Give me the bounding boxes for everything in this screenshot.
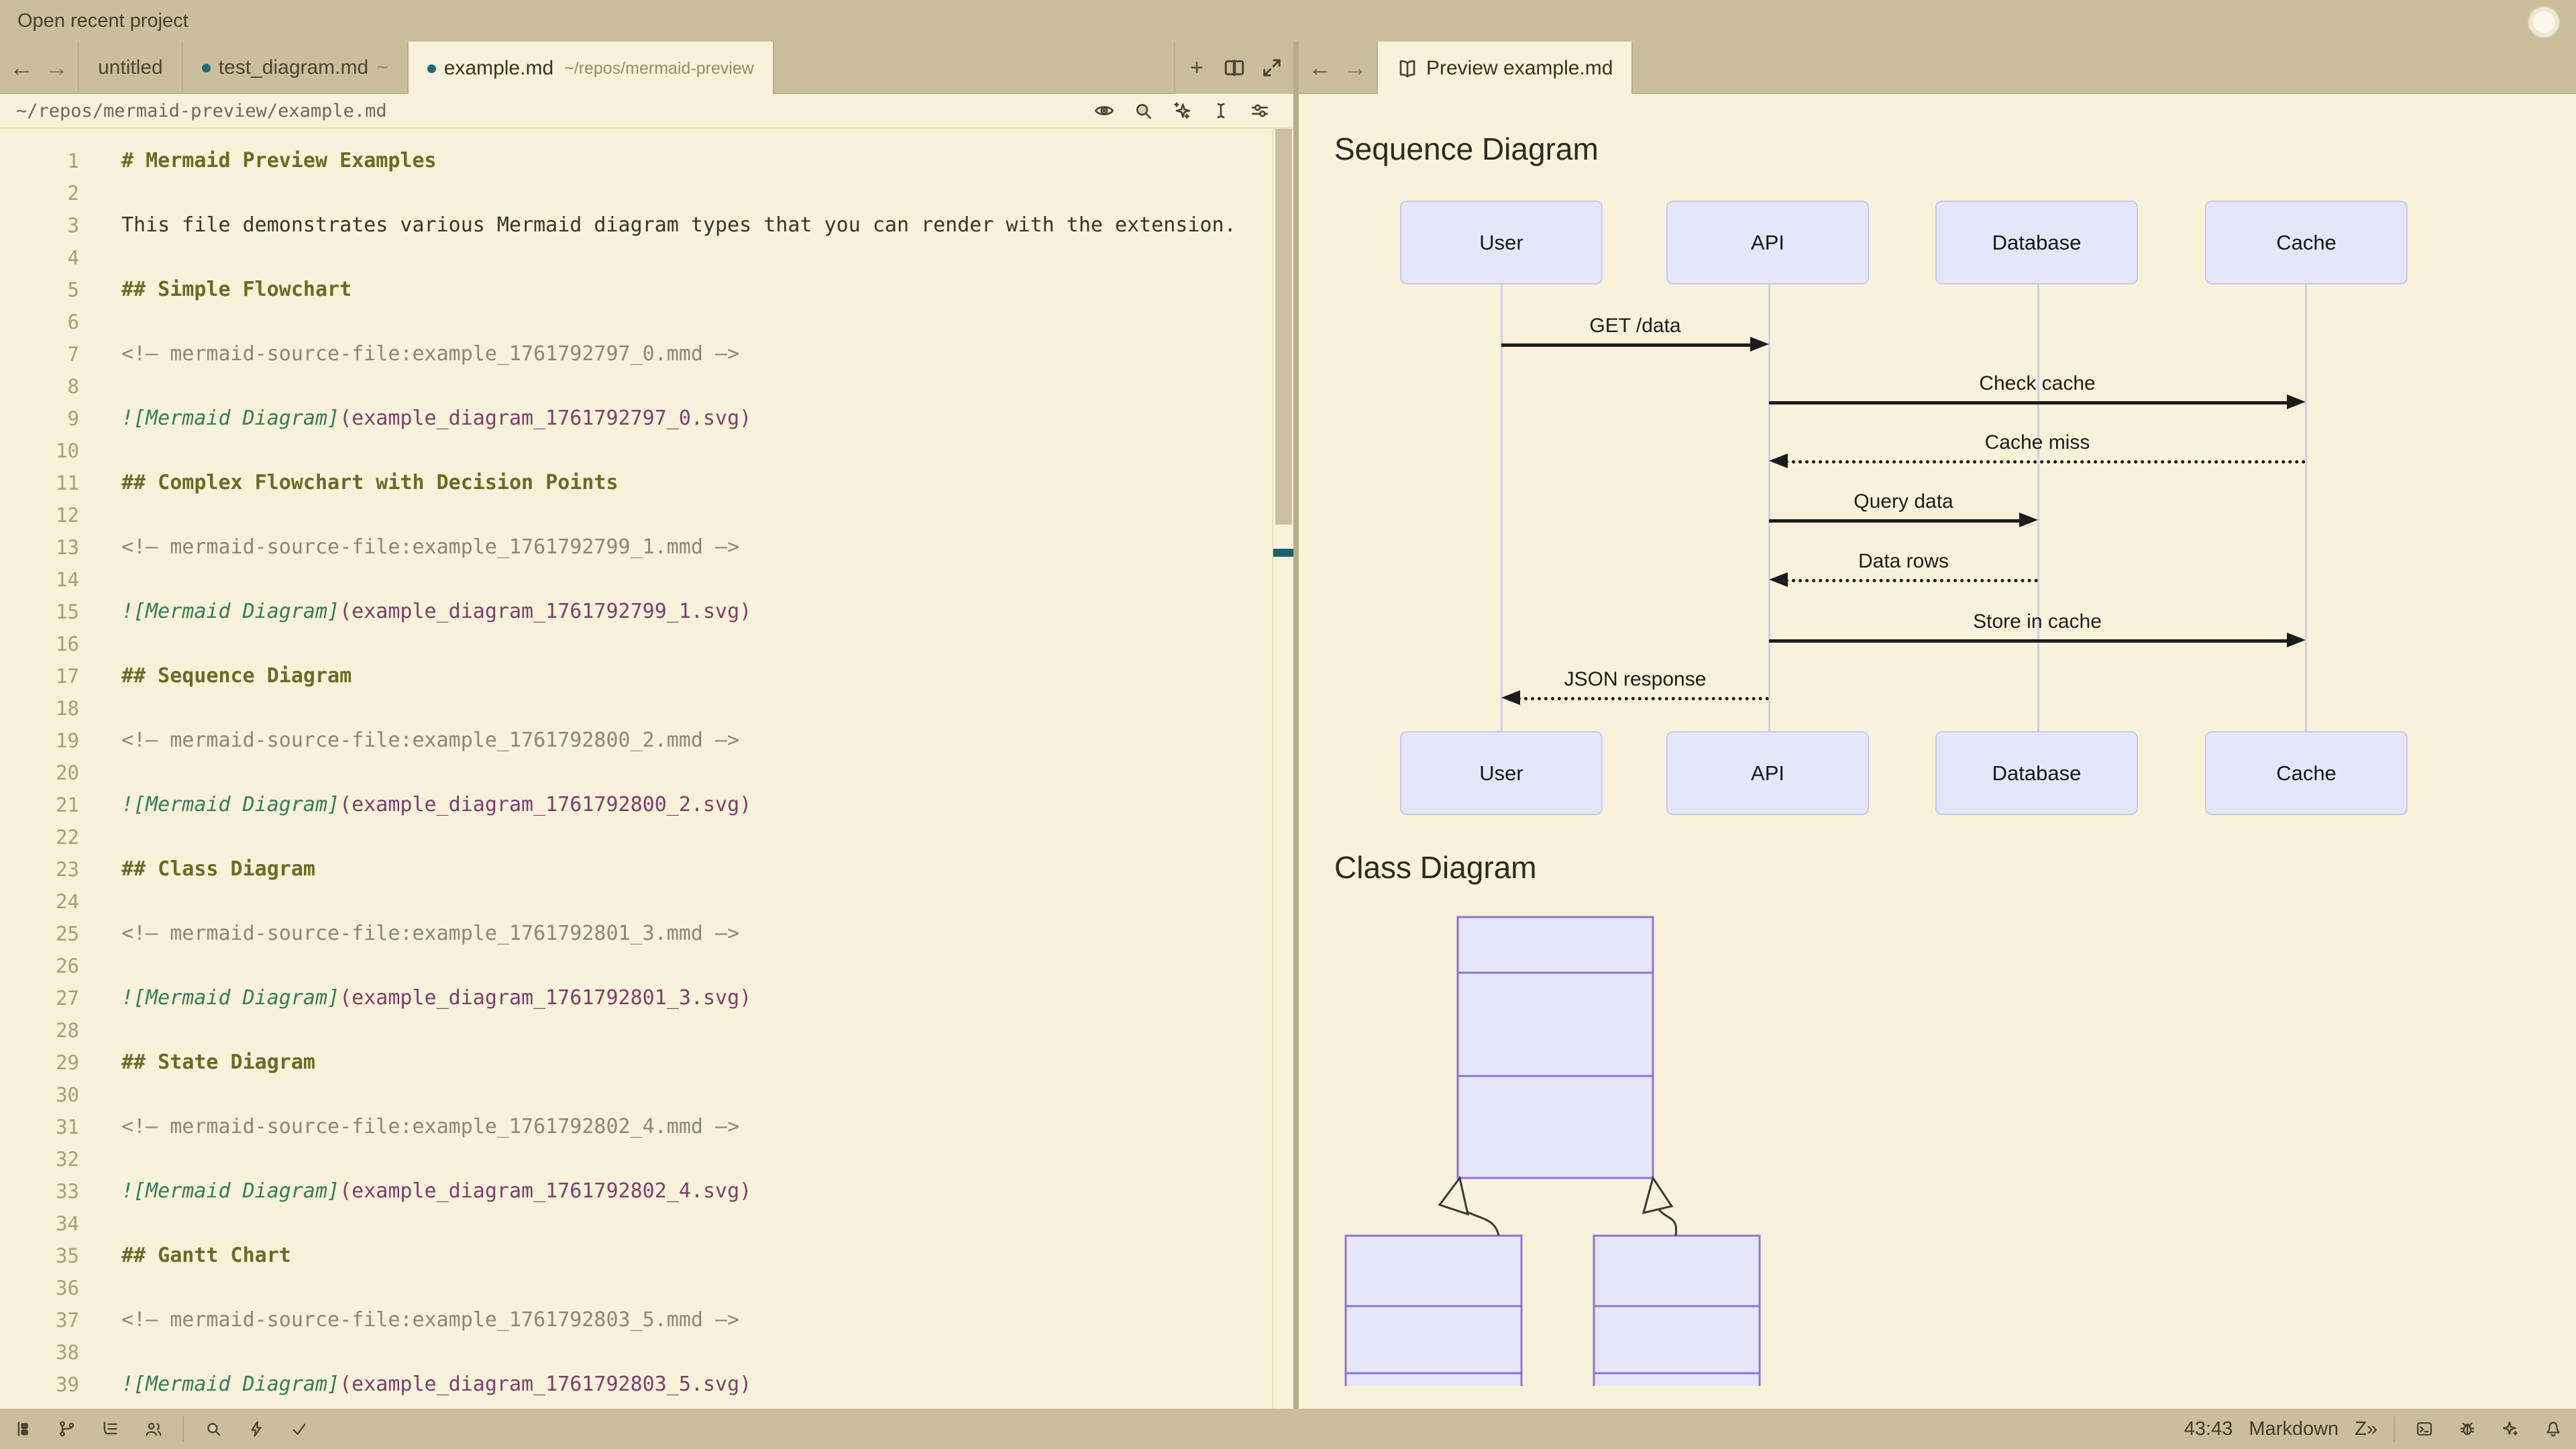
line-content: # Mermaid Preview Examples	[121, 145, 437, 177]
zoom-pane-icon[interactable]	[1256, 48, 1288, 88]
editor-line: 36	[0, 1272, 1272, 1304]
line-content: ## Simple Flowchart	[121, 274, 352, 306]
line-content: ## Class Diagram	[121, 853, 315, 885]
editor-content[interactable]: 1# Mermaid Preview Examples23This file d…	[0, 129, 1272, 1409]
editor-line: 19<!— mermaid-source-file:example_176179…	[0, 724, 1272, 757]
edit-prediction-icon[interactable]: Z»	[2355, 1418, 2377, 1440]
search-icon[interactable]	[200, 1413, 227, 1445]
line-number: 29	[0, 1046, 79, 1079]
editor-line: 9![Mermaid Diagram](example_diagram_1761…	[0, 402, 1272, 435]
line-number: 11	[0, 467, 79, 499]
inline-assist-icon[interactable]	[1167, 96, 1197, 125]
zed-window: Open recent project ← → untitledtest_dia…	[0, 0, 2576, 1449]
code-token: ![Mermaid Diagram]	[121, 986, 339, 1010]
line-number: 27	[0, 982, 79, 1014]
line-number: 12	[0, 499, 79, 531]
line-number: 4	[0, 241, 79, 274]
editor-line: 7<!— mermaid-source-file:example_1761792…	[0, 338, 1272, 370]
notifications-bell-icon[interactable]	[2540, 1413, 2567, 1445]
editor-tabs: untitledtest_diagram.md~example.md~/repo…	[79, 42, 774, 94]
code-token: <!— mermaid-source-file:example_17617927…	[121, 342, 739, 366]
line-content: ## Sequence Diagram	[121, 660, 352, 692]
forward-icon[interactable]: →	[39, 42, 74, 94]
book-icon	[1397, 58, 1418, 79]
line-number: 33	[0, 1175, 79, 1207]
editor-line: 16	[0, 628, 1272, 660]
line-number: 7	[0, 338, 79, 370]
editor-line: 15![Mermaid Diagram](example_diagram_176…	[0, 596, 1272, 628]
line-content: ![Mermaid Diagram](example_diagram_17617…	[121, 402, 751, 435]
editor-line: 20	[0, 757, 1272, 789]
collab-panel-icon[interactable]	[140, 1413, 166, 1445]
line-number: 36	[0, 1272, 79, 1304]
diagnostics-check-icon[interactable]	[286, 1413, 313, 1445]
line-content: ![Mermaid Diagram](example_diagram_17617…	[121, 982, 751, 1014]
line-number: 28	[0, 1014, 79, 1046]
editor-line: 25<!— mermaid-source-file:example_176179…	[0, 918, 1272, 950]
line-number: 13	[0, 531, 79, 563]
editor-toolbar: ~/repos/mermaid-preview/example.md	[0, 94, 1293, 129]
line-number: 5	[0, 274, 79, 306]
status-separator	[2394, 1416, 2395, 1442]
line-content: ## State Diagram	[121, 1046, 315, 1079]
title-bar: Open recent project	[0, 0, 2576, 42]
tab-test-diagram.md[interactable]: test_diagram.md~	[183, 42, 409, 94]
editor-line: 35## Gantt Chart	[0, 1240, 1272, 1272]
tab-label: Preview example.md	[1426, 57, 1613, 80]
tasks-lightning-icon[interactable]	[243, 1413, 270, 1445]
line-number: 14	[0, 563, 79, 596]
new-tab-icon[interactable]: +	[1181, 48, 1213, 88]
editor-line: 5## Simple Flowchart	[0, 274, 1272, 306]
code-token: (example_diagram_1761792800_2.svg)	[339, 793, 751, 816]
editor-line: 27![Mermaid Diagram](example_diagram_176…	[0, 982, 1272, 1014]
code-token: ![Mermaid Diagram]	[121, 1179, 339, 1203]
line-number: 2	[0, 177, 79, 209]
terminal-icon[interactable]	[2411, 1413, 2438, 1445]
search-icon[interactable]	[1128, 96, 1158, 125]
editor-line: 37<!— mermaid-source-file:example_176179…	[0, 1304, 1272, 1336]
editor-line: 17## Sequence Diagram	[0, 660, 1272, 692]
tab-controls: +	[1174, 42, 1293, 94]
code-token: ![Mermaid Diagram]	[121, 600, 339, 623]
markdown-preview-pane[interactable]: Sequence Diagram UserAPIDatabaseCacheUse…	[1299, 94, 2576, 1409]
toolbar-icons	[1089, 94, 1275, 127]
editor-line: 13<!— mermaid-source-file:example_176179…	[0, 531, 1272, 563]
scrollbar-cursor-marker	[1273, 549, 1293, 557]
editor-line: 38	[0, 1336, 1272, 1368]
open-recent-project-button[interactable]: Open recent project	[17, 0, 189, 42]
line-content: <!— mermaid-source-file:example_17617928…	[121, 1111, 739, 1143]
editor-line: 33![Mermaid Diagram](example_diagram_176…	[0, 1175, 1272, 1207]
modified-dot	[202, 64, 211, 72]
line-content: ## Gantt Chart	[121, 1240, 291, 1272]
code-token: ## Sequence Diagram	[121, 664, 352, 688]
editor-line: 31<!— mermaid-source-file:example_176179…	[0, 1111, 1272, 1143]
editor-line: 32	[0, 1143, 1272, 1175]
editor-line: 30	[0, 1079, 1272, 1111]
status-bar: 43:43 Markdown Z»	[0, 1409, 2576, 1449]
status-bar-right: 43:43 Markdown Z»	[2184, 1413, 2567, 1445]
text-cursor-icon[interactable]	[1206, 96, 1236, 125]
code-token: This file demonstrates various Mermaid d…	[121, 213, 1236, 237]
line-number: 19	[0, 724, 79, 757]
line-number: 18	[0, 692, 79, 724]
editor-line: 29## State Diagram	[0, 1046, 1272, 1079]
line-content: ## Complex Flowchart with Decision Point…	[121, 467, 619, 499]
tab-label: untitled	[98, 56, 163, 79]
editor-line: 18	[0, 692, 1272, 724]
line-number: 35	[0, 1240, 79, 1272]
split-pane-icon[interactable]	[1218, 48, 1250, 88]
line-content: <!— mermaid-source-file:example_17617928…	[121, 724, 739, 757]
back-icon[interactable]: ←	[4, 42, 39, 94]
editor-line: 1# Mermaid Preview Examples	[0, 145, 1272, 177]
line-number: 10	[0, 435, 79, 467]
left-pane-tab-strip: ← → untitledtest_diagram.md~example.md~/…	[0, 42, 1293, 94]
line-number: 16	[0, 628, 79, 660]
code-token: (example_diagram_1761792797_0.svg)	[339, 407, 751, 430]
user-avatar[interactable]	[2528, 6, 2560, 38]
forward-icon[interactable]: →	[1338, 42, 1373, 94]
line-number: 22	[0, 821, 79, 853]
line-number: 31	[0, 1111, 79, 1143]
editor-line: 11## Complex Flowchart with Decision Poi…	[0, 467, 1272, 499]
line-number: 6	[0, 306, 79, 338]
tab-path: ~/repos/mermaid-preview	[564, 59, 754, 78]
line-number: 25	[0, 918, 79, 950]
code-token: ## State Diagram	[121, 1051, 315, 1074]
line-number: 23	[0, 853, 79, 885]
line-content: <!— mermaid-source-file:example_17617927…	[121, 531, 739, 563]
editor-line: 23## Class Diagram	[0, 853, 1272, 885]
line-content: This file demonstrates various Mermaid d…	[121, 209, 1236, 241]
code-token: (example_diagram_1761792803_5.svg)	[339, 1373, 751, 1396]
outline-panel-icon[interactable]	[97, 1413, 123, 1445]
line-number: 17	[0, 660, 79, 692]
code-token: ![Mermaid Diagram]	[121, 407, 339, 430]
cursor-position[interactable]: 43:43	[2184, 1418, 2233, 1440]
line-number: 37	[0, 1304, 79, 1336]
code-token: (example_diagram_1761792801_3.svg)	[339, 986, 751, 1010]
editor-line: 2	[0, 177, 1272, 209]
code-token: # Mermaid Preview Examples	[121, 149, 437, 172]
editor-line: 8	[0, 370, 1272, 402]
editor-line: 10	[0, 435, 1272, 467]
right-pane-nav: ← →	[1299, 42, 1378, 94]
line-number: 26	[0, 950, 79, 982]
back-icon[interactable]: ←	[1303, 42, 1338, 94]
line-number: 8	[0, 370, 79, 402]
tab-label: test_diagram.md	[219, 56, 368, 79]
modified-dot	[427, 64, 436, 73]
line-number: 21	[0, 789, 79, 821]
editor-scrollbar[interactable]	[1272, 129, 1293, 1409]
editor-line: 24	[0, 885, 1272, 918]
status-separator	[182, 1416, 184, 1442]
line-number: 9	[0, 402, 79, 435]
tab-conflict-suffix: ~	[376, 56, 388, 79]
line-number: 39	[0, 1368, 79, 1401]
code-token: <!— mermaid-source-file:example_17617927…	[121, 535, 739, 559]
git-branch-icon[interactable]	[54, 1413, 80, 1445]
code-token: ## Complex Flowchart with Decision Point…	[121, 471, 619, 494]
line-number: 20	[0, 757, 79, 789]
line-content: <!— mermaid-source-file:example_17617928…	[121, 1304, 739, 1336]
debug-bug-icon[interactable]	[2454, 1413, 2481, 1445]
line-number: 32	[0, 1143, 79, 1175]
line-content: ![Mermaid Diagram](example_diagram_17617…	[121, 1175, 751, 1207]
line-number: 38	[0, 1336, 79, 1368]
breadcrumb[interactable]: ~/repos/mermaid-preview/example.md	[16, 101, 387, 121]
code-token: <!— mermaid-source-file:example_17617928…	[121, 1115, 739, 1138]
status-bar-left	[11, 1413, 313, 1445]
editor-line: 39![Mermaid Diagram](example_diagram_176…	[0, 1368, 1272, 1401]
tab-preview-example-md[interactable]: Preview example.md	[1378, 42, 1633, 95]
line-number: 30	[0, 1079, 79, 1111]
code-token: ## Gantt Chart	[121, 1244, 291, 1267]
tab-example.md[interactable]: example.md~/repos/mermaid-preview	[409, 42, 774, 95]
line-content: ![Mermaid Diagram](example_diagram_17617…	[121, 789, 751, 821]
editor-line: 28	[0, 1014, 1272, 1046]
code-token: ![Mermaid Diagram]	[121, 1373, 339, 1396]
project-panel-icon[interactable]	[11, 1413, 38, 1445]
code-token: <!— mermaid-source-file:example_17617928…	[121, 729, 739, 752]
class-diagram	[1299, 94, 2576, 1386]
editor-line: 4	[0, 241, 1272, 274]
editor-line: 34	[0, 1207, 1272, 1240]
code-token: ## Class Diagram	[121, 857, 315, 881]
line-number: 24	[0, 885, 79, 918]
code-token: ![Mermaid Diagram]	[121, 793, 339, 816]
editor-line: 21![Mermaid Diagram](example_diagram_176…	[0, 789, 1272, 821]
editor-line: 22	[0, 821, 1272, 853]
code-token: (example_diagram_1761792802_4.svg)	[339, 1179, 751, 1203]
editor-line: 14	[0, 563, 1272, 596]
tab-label: example.md	[444, 57, 553, 80]
tab-bar: ← → untitledtest_diagram.md~example.md~/…	[0, 42, 2576, 94]
line-number: 34	[0, 1207, 79, 1240]
preview-eye-icon[interactable]	[1089, 96, 1119, 125]
code-token: <!— mermaid-source-file:example_17617928…	[121, 1308, 739, 1332]
line-number: 15	[0, 596, 79, 628]
editor-line: 6	[0, 306, 1272, 338]
editor-line: 12	[0, 499, 1272, 531]
line-content: ![Mermaid Diagram](example_diagram_17617…	[121, 1368, 751, 1401]
assistant-sparkle-icon[interactable]	[2497, 1413, 2524, 1445]
line-content: ![Mermaid Diagram](example_diagram_17617…	[121, 596, 751, 628]
scrollbar-thumb[interactable]	[1275, 129, 1292, 525]
line-content: <!— mermaid-source-file:example_17617927…	[121, 338, 739, 370]
editor-line: 3This file demonstrates various Mermaid …	[0, 209, 1272, 241]
left-pane-nav: ← →	[0, 42, 79, 94]
editor-line: 26	[0, 950, 1272, 982]
right-pane-tab-strip: ← → Preview example.md	[1299, 42, 2576, 94]
line-content: <!— mermaid-source-file:example_17617928…	[121, 918, 739, 950]
editor-controls-icon[interactable]	[1245, 96, 1275, 125]
line-number: 1	[0, 145, 79, 177]
code-token: ## Simple Flowchart	[121, 278, 352, 301]
line-number: 3	[0, 209, 79, 241]
tab-untitled[interactable]: untitled	[79, 42, 183, 94]
code-token: (example_diagram_1761792799_1.svg)	[339, 600, 751, 623]
code-token: <!— mermaid-source-file:example_17617928…	[121, 922, 739, 945]
pane-divider[interactable]	[1293, 42, 1299, 1409]
language-selector[interactable]: Markdown	[2249, 1418, 2339, 1440]
